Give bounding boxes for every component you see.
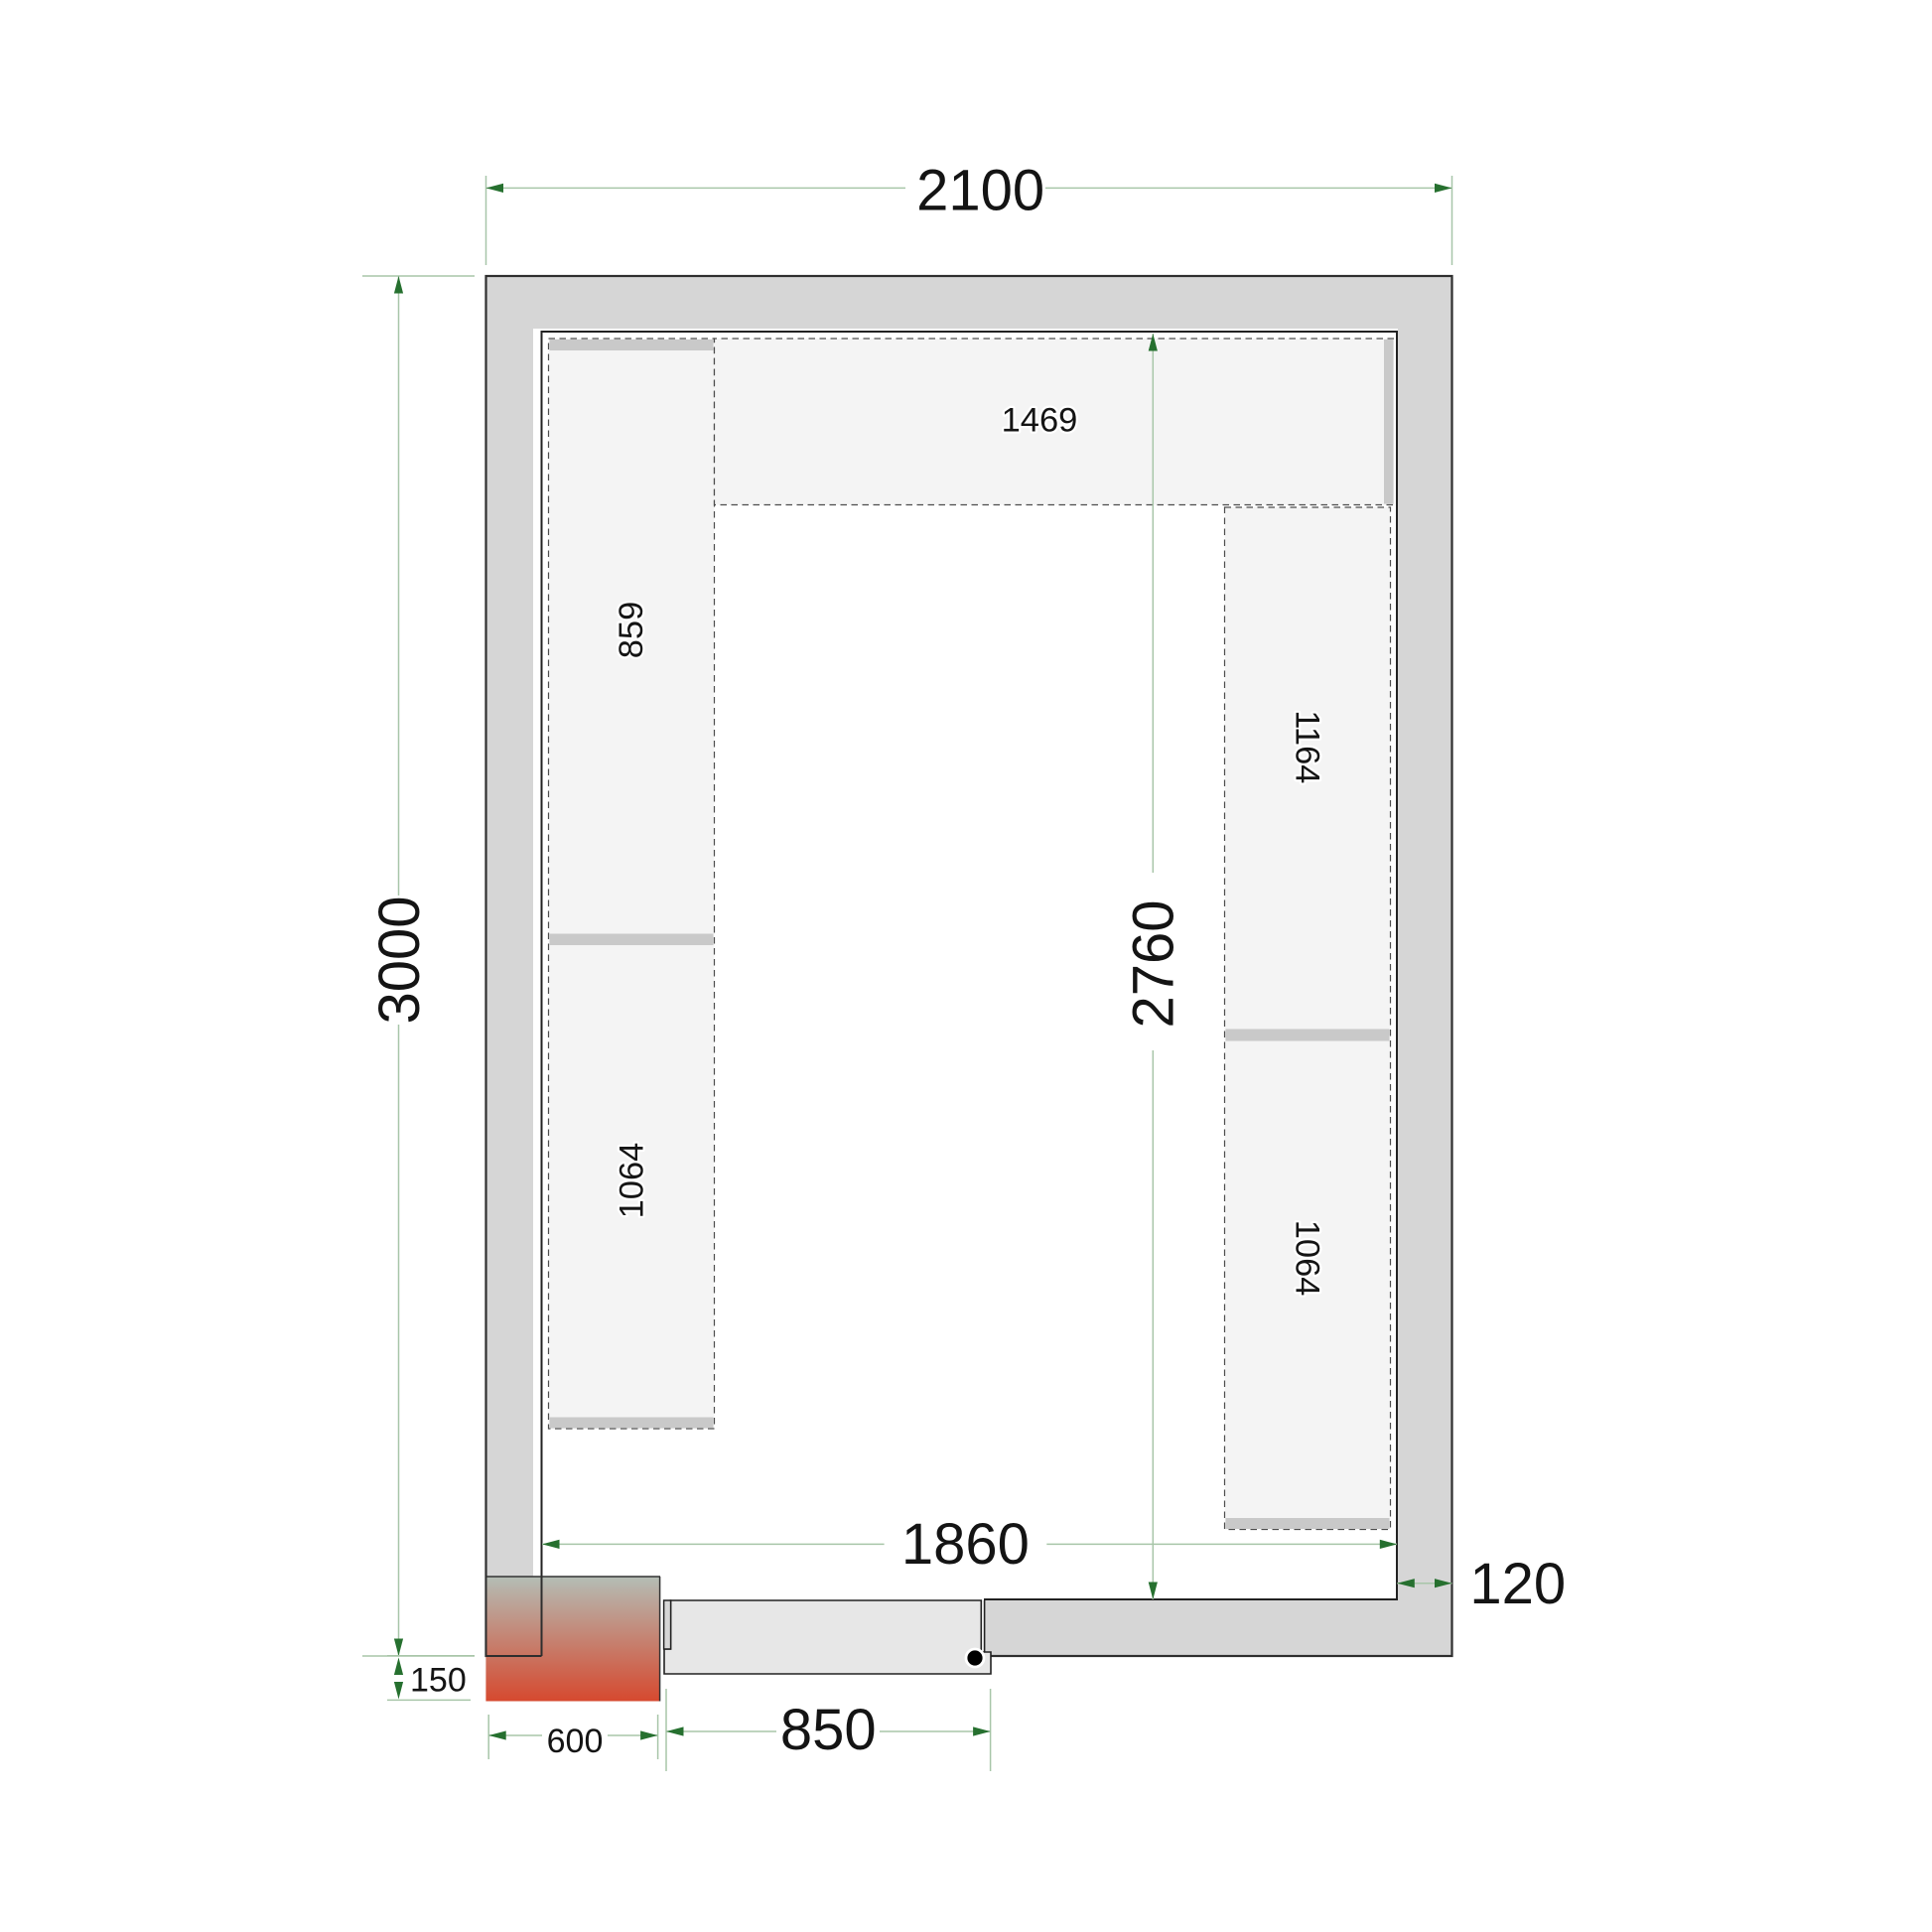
svg-text:2760: 2760 <box>1121 899 1185 1028</box>
svg-text:150: 150 <box>410 1662 467 1700</box>
svg-text:850: 850 <box>780 1698 877 1762</box>
svg-text:120: 120 <box>1469 1552 1566 1616</box>
svg-text:3000: 3000 <box>367 896 432 1024</box>
svg-text:600: 600 <box>547 1723 604 1760</box>
svg-text:1860: 1860 <box>901 1512 1030 1577</box>
svg-text:1469: 1469 <box>1002 401 1078 439</box>
svg-text:1064: 1064 <box>1289 1220 1326 1297</box>
svg-text:1064: 1064 <box>613 1143 650 1219</box>
svg-text:1164: 1164 <box>1289 710 1326 783</box>
svg-text:859: 859 <box>613 602 650 659</box>
svg-text:2100: 2100 <box>916 159 1044 223</box>
